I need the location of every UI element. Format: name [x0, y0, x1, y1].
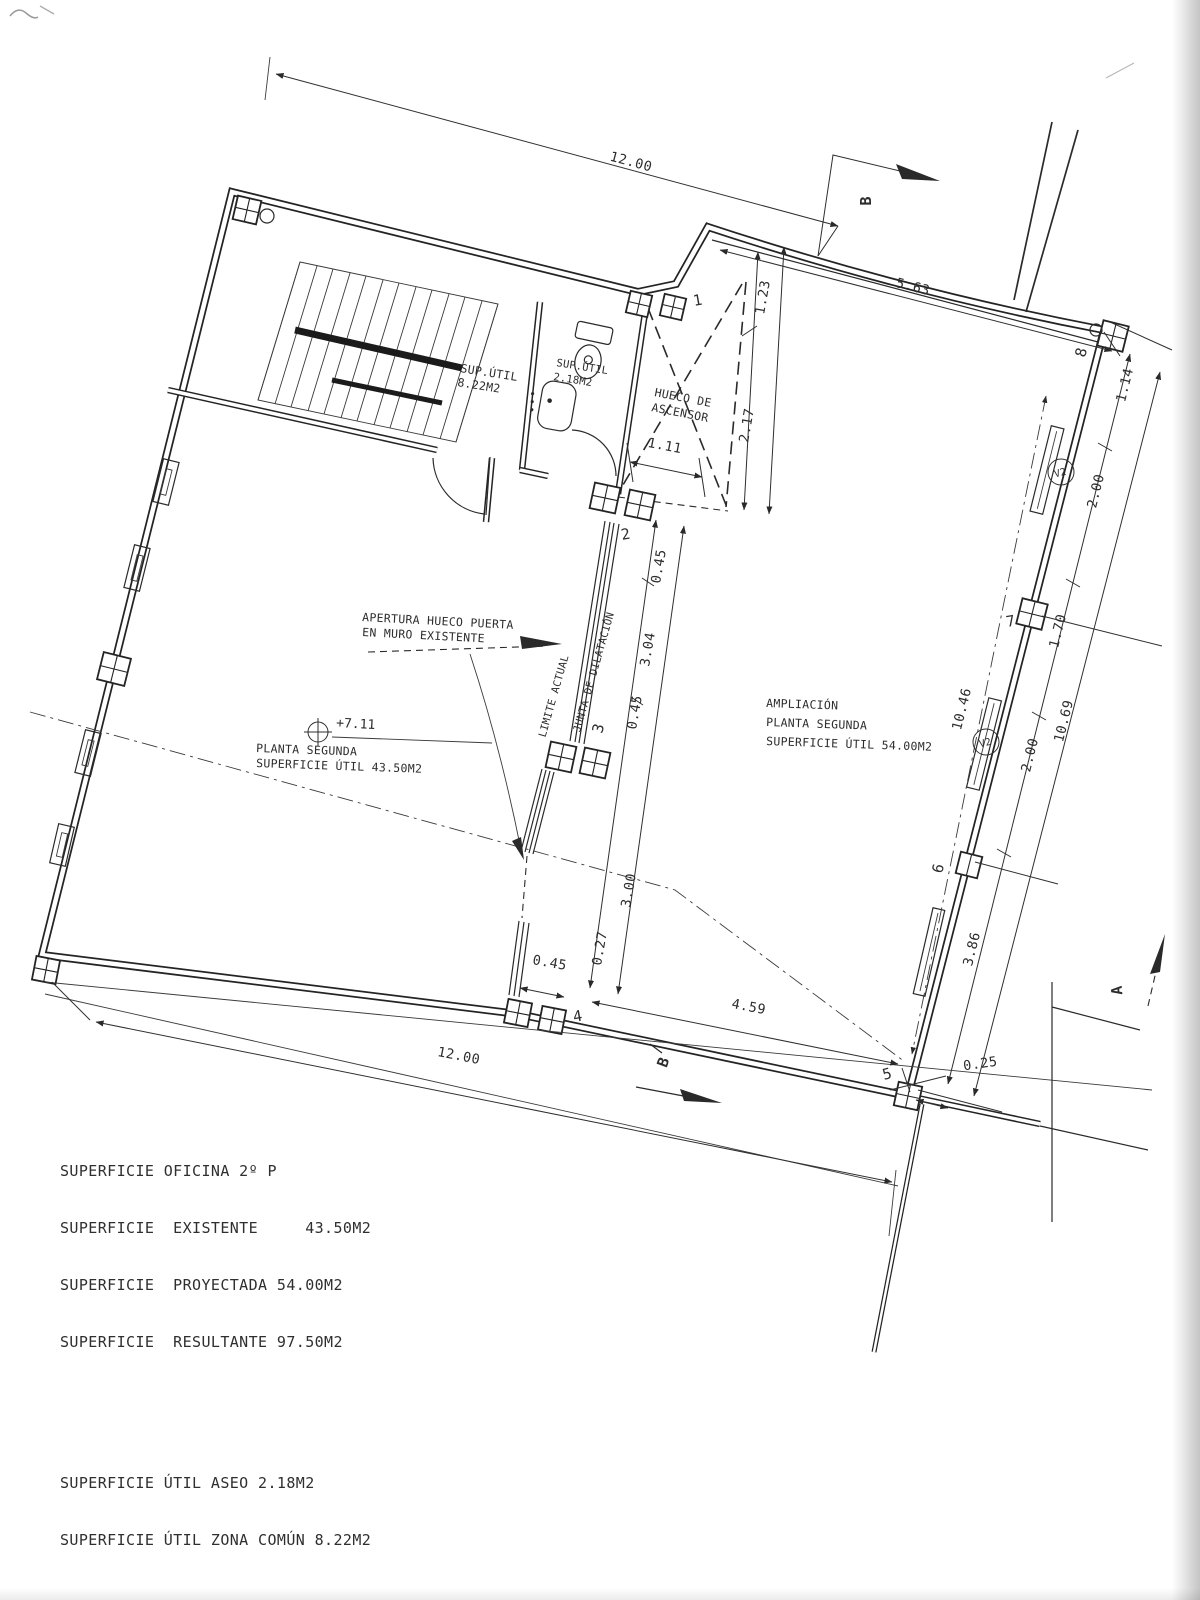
point-number-5: 5 [880, 1064, 893, 1084]
surface-summary: SUPERFICIE OFICINA 2º P SUPERFICIE EXIST… [60, 1086, 447, 1600]
dim-300: 3.00 [618, 872, 640, 909]
exterior-walls [42, 192, 1104, 1096]
summary-util-group: SUPERFICIE ÚTIL ASEO 2.18M2 SUPERFICIE Ú… [60, 1436, 447, 1588]
point-number-3: 3 [588, 722, 608, 735]
point-number-1: 1 [692, 291, 704, 310]
door-swing-hall [433, 458, 484, 514]
section-b-label: B [857, 196, 875, 205]
dim-top-width: 12.00 [608, 149, 654, 176]
dim-563: 5.63 [894, 275, 931, 299]
summary-line: SUPERFICIE RESULTANTE 97.50M2 [60, 1333, 447, 1352]
planta-segunda-label-2: SUPERFICIE ÚTIL 43.50M2 [256, 755, 423, 776]
summary-line: SUPERFICIE EXISTENTE 43.50M2 [60, 1219, 447, 1238]
summary-office-group: SUPERFICIE OFICINA 2º P SUPERFICIE EXIST… [60, 1124, 447, 1390]
windows [50, 426, 1064, 996]
section-markers [636, 155, 1165, 1103]
ampliacion-label-2: PLANTA SEGUNDA [766, 715, 868, 733]
dim-111: 1.11 [646, 435, 683, 457]
dim-217: 2.17 [736, 407, 758, 444]
point-number-7: 7 [1005, 612, 1017, 631]
dim-459: 4.59 [730, 996, 767, 1018]
summary-line: SUPERFICIE PROYECTADA 54.00M2 [60, 1276, 447, 1295]
summary-line: SUPERFICIE ÚTIL ASEO 2.18M2 [60, 1474, 447, 1493]
dim-386: 3.86 [960, 930, 984, 967]
dim-025: 0.25 [962, 1054, 998, 1075]
scan-artifacts [10, 6, 1134, 78]
nivel-label: +7.11 [336, 716, 376, 733]
section-a-label: A [1108, 985, 1127, 996]
junta-dilatacion-label: JUNTA DE DILATACIÓN [570, 611, 617, 734]
scan-edge-shadow-bottom [0, 1588, 1200, 1600]
dim-bottom-width: 12.00 [436, 1044, 481, 1068]
point-number-8: 8 [1071, 346, 1091, 359]
dim-123: 1.23 [752, 279, 774, 316]
level-mark-icon [304, 718, 492, 746]
summary-line: SUPERFICIE OFICINA 2º P [60, 1162, 447, 1181]
point-number-4: 4 [572, 1007, 584, 1026]
section-a-arrow-icon [1150, 934, 1165, 974]
annotations-graphics [304, 459, 1074, 860]
section-b-arrow-icon [896, 164, 940, 181]
dim-200-upper: 2.00 [1084, 472, 1108, 509]
section-b-bottom-arrow-icon [680, 1089, 722, 1103]
point-number-6: 6 [928, 862, 948, 875]
dim-1069: 10.69 [1051, 698, 1077, 744]
summary-line: SUPERFICIE ÚTIL ZONA COMÚN 8.22M2 [60, 1531, 447, 1550]
scan-edge-shadow-right [1172, 0, 1200, 1600]
window-v2-lower-label: V2 [978, 737, 992, 751]
apertura-arrow-icon [520, 636, 562, 649]
stair-handrail-upper [295, 330, 462, 368]
dim-027: 0.27 [589, 930, 611, 967]
section-b-bottom-label: B [653, 1055, 673, 1070]
door-swing-bathroom [572, 430, 616, 476]
point-number-2: 2 [620, 525, 632, 544]
limite-actual-label: LIMITE ACTUAL [537, 654, 572, 739]
dim-045b: 0.45 [624, 694, 646, 731]
dim-045c: 0.45 [531, 952, 568, 974]
dim-200-lower: 2.00 [1018, 736, 1042, 773]
dim-114: 1.14 [1113, 366, 1137, 403]
dim-1046: 10.46 [949, 686, 975, 732]
dim-304: 3.04 [637, 631, 659, 668]
ampliacion-label-3: SUPERFICIE ÚTIL 54.00M2 [766, 733, 933, 754]
scanned-floor-plan-page: 12.00 5.63 1.23 2.17 1.11 0.45 3.04 0.45… [0, 0, 1200, 1600]
ampliacion-label-1: AMPLIACIÓN [766, 695, 839, 713]
